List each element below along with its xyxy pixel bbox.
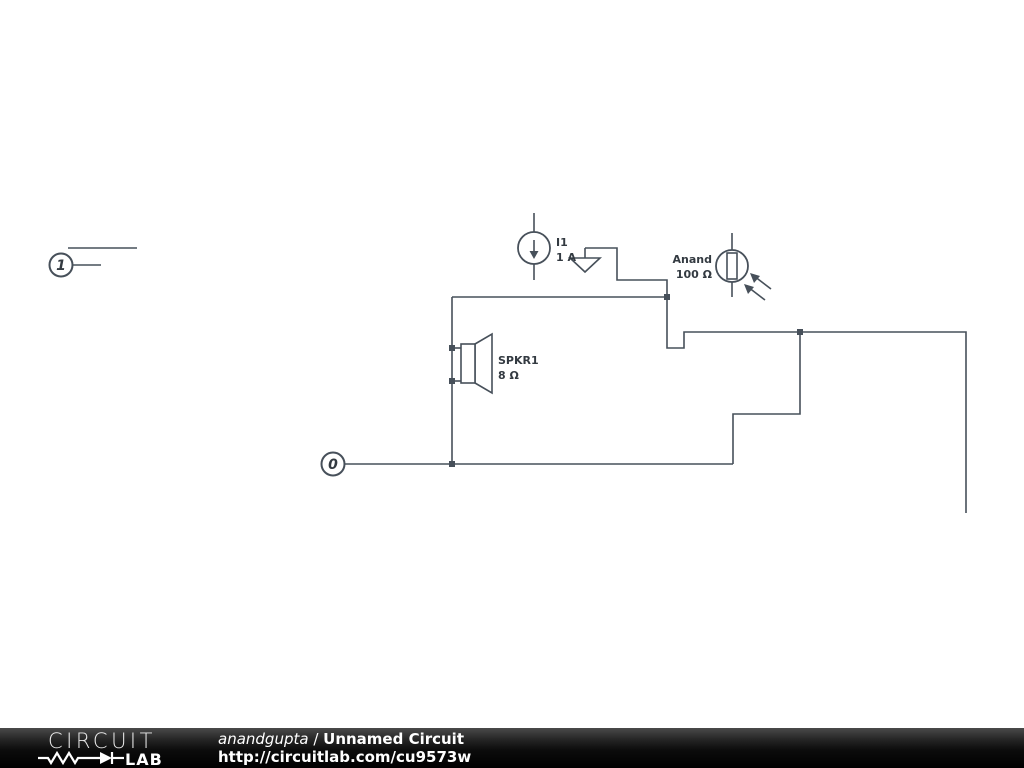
speaker-value: 8 Ω [498,369,519,382]
circuitlab-export-page: 1 0 I1 1 A Anand 100 Ω SPKR1 8 Ω CIRCUIT [0,0,1024,768]
logo-lab-text: LAB [125,750,163,768]
circuitlab-logo[interactable]: CIRCUIT LAB [38,728,213,768]
wire-top-right[interactable] [800,332,966,513]
photoresistor-value: 100 Ω [676,268,713,281]
current-source-name: I1 [556,236,568,249]
circuit-title: Unnamed Circuit [323,730,464,748]
wire-staircase-right[interactable] [667,297,800,348]
photoresistor-name: Anand [673,253,712,266]
circuit-url[interactable]: http://circuitlab.com/cu9573w [218,748,471,766]
footer-bar: CIRCUIT LAB anandgupta / Unnamed Circuit… [0,728,1024,768]
schematic-canvas[interactable]: 1 0 I1 1 A Anand 100 Ω SPKR1 8 Ω [0,0,1024,728]
current-source-i1[interactable] [518,213,550,280]
credit-block: anandgupta / Unnamed Circuit http://circ… [218,730,471,766]
node-1-label: 1 [56,258,66,274]
author-name: anandgupta [218,730,309,748]
photoresistor-anand[interactable] [716,233,771,300]
speaker-spkr1[interactable] [452,334,492,393]
node-0-label: 0 [328,457,338,473]
light-arrows-icon [744,273,771,300]
schematic-svg: 1 0 I1 1 A Anand 100 Ω SPKR1 8 Ω [0,0,1024,728]
wire-ground-to-junction[interactable] [585,248,667,297]
credit-separator: / [309,730,324,748]
speaker-name: SPKR1 [498,354,539,367]
wire-bottom-right[interactable] [733,332,800,464]
current-source-value: 1 A [556,251,576,264]
